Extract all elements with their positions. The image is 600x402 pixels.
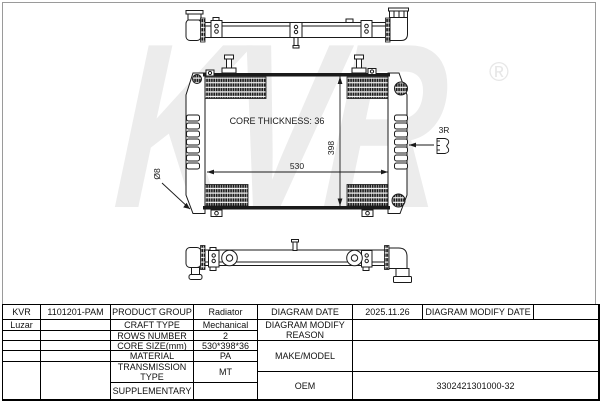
- dim-width-label: 530: [290, 161, 304, 171]
- rows-number-label: ROWS NUMBER: [111, 331, 194, 341]
- right-tank-upper-port: [395, 82, 408, 95]
- brand-cell: KVR: [3, 305, 41, 320]
- supplementary-label: SUPPLEMENTARY: [111, 383, 194, 400]
- dim-radius-label: 3R: [439, 125, 450, 135]
- diagram-modify-reason-label: DIAGRAM MODIFY REASON: [258, 320, 353, 341]
- rows-number-value: 2: [194, 331, 258, 341]
- material-value: PA: [194, 351, 258, 362]
- diagram-date-label: DIAGRAM DATE: [258, 305, 353, 320]
- oem-value: 3302421301000-32: [353, 372, 599, 400]
- diagram-modify-date-value: [534, 305, 599, 320]
- empty-cell: [3, 331, 41, 341]
- empty-cell: [41, 320, 111, 331]
- core-size-value: 530*398*36: [194, 341, 258, 351]
- empty-cell: [3, 341, 41, 351]
- product-group-value: Radiator: [194, 305, 258, 320]
- transmission-type-label: TRANSMISSION TYPE: [111, 362, 194, 383]
- dim-hole-label: Ø8: [152, 168, 162, 180]
- filler-necks: [206, 55, 376, 76]
- empty-cell: [3, 362, 41, 400]
- bottom-brackets: [211, 210, 373, 217]
- drawing-sheet: KVR ®: [0, 0, 600, 402]
- radiator-top-view: [186, 8, 409, 48]
- core-fin-hatch: [205, 77, 388, 206]
- part-number-cell: 1101201-PAM: [41, 305, 111, 320]
- right-tank-ribs: [395, 115, 408, 169]
- empty-cell: [41, 341, 111, 351]
- craft-type-label: CRAFT TYPE: [111, 320, 194, 331]
- brand-alt-cell: Luzar: [3, 320, 41, 331]
- transmission-type-value: MT: [194, 362, 258, 383]
- radiator-technical-drawing: CORE THICKNESS: 36 530 398 Ø8 3R: [0, 0, 600, 304]
- radiator-front-view: [186, 55, 408, 217]
- left-tank-ribs: [187, 115, 200, 169]
- dim-height-label: 398: [326, 141, 336, 155]
- oem-label: OEM: [258, 372, 353, 400]
- spec-table: KVR1101201-PAMPRODUCT GROUPRadiatorDIAGR…: [2, 304, 600, 401]
- diagram-date-value: 2025.11.26: [353, 305, 423, 320]
- empty-cell: [3, 351, 41, 362]
- empty-cell: [41, 351, 111, 362]
- left-tank-port: [193, 75, 202, 84]
- diagram-modify-date-label: DIAGRAM MODIFY DATE: [423, 305, 534, 320]
- core-size-label: CORE SIZE(mm): [111, 341, 194, 351]
- right-tank-lower-port: [392, 194, 405, 207]
- supplementary-value: [194, 383, 258, 400]
- radiator-bottom-view: [186, 240, 412, 283]
- make-model-label: MAKE/MODEL: [258, 341, 353, 372]
- make-model-value: [353, 341, 599, 372]
- product-group-label: PRODUCT GROUP: [111, 305, 194, 320]
- diagram-modify-reason-value: [353, 320, 599, 341]
- material-label: MATERIAL: [111, 351, 194, 362]
- craft-type-value: Mechanical: [194, 320, 258, 331]
- empty-cell: [41, 362, 111, 400]
- empty-cell: [41, 331, 111, 341]
- core-thickness-label: CORE THICKNESS: 36: [230, 116, 325, 126]
